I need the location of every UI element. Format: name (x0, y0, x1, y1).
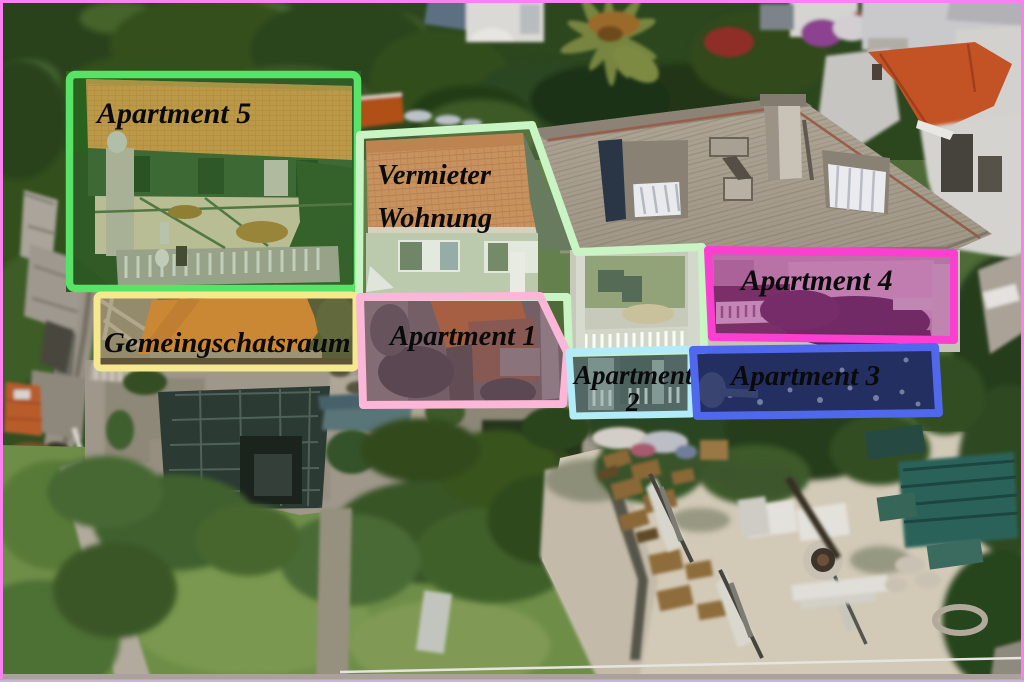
svg-text:Apartment 3: Apartment 3 (729, 360, 880, 392)
svg-text:Vermieter: Vermieter (377, 160, 492, 191)
svg-text:Wohnung: Wohnung (377, 203, 492, 234)
svg-text:2: 2 (625, 387, 640, 417)
svg-text:Gemeingschatsraum: Gemeingschatsraum (104, 327, 351, 359)
svg-text:Apartment 4: Apartment 4 (739, 265, 893, 297)
svg-text:Apartment 1: Apartment 1 (388, 321, 536, 352)
svg-text:Apartment: Apartment (572, 360, 694, 390)
svg-text:Apartment 5: Apartment 5 (95, 97, 251, 130)
